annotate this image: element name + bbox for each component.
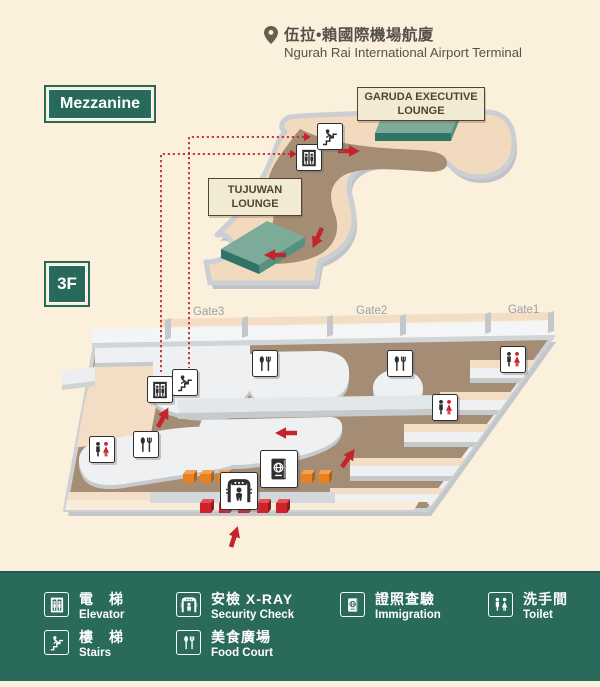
legend-item-toilet: 洗手間Toilet	[488, 592, 568, 622]
food-court-icon	[387, 350, 413, 377]
toilet-icon	[432, 394, 458, 421]
legend-toilet-zh: 洗手間	[523, 592, 568, 607]
gate2-label: Gate2	[356, 305, 387, 317]
stairs-icon	[172, 369, 198, 396]
legend-immigration-en: Immigration	[375, 609, 441, 622]
garuda-executive-lounge-label: GARUDA EXECUTIVE LOUNGE	[357, 87, 485, 121]
immigration-icon	[340, 592, 365, 617]
legend-item-immigration: 證照查驗Immigration	[340, 592, 441, 622]
immigration-icon	[260, 450, 298, 488]
page-title-zh: 伍拉•賴國際機場航廈	[284, 23, 434, 45]
airport-terminal-map-page: 伍拉•賴國際機場航廈 Ngurah Rai International Airp…	[0, 0, 600, 687]
legend-item-food-court: 美食廣場Food Court	[176, 630, 273, 660]
legend-security-en: Security Check	[211, 609, 294, 622]
legend-item-stairs: 樓 梯Stairs	[44, 630, 124, 660]
toilet-icon	[89, 436, 115, 463]
toilet-icon	[488, 592, 513, 617]
legend-item-elevator: 電 梯Elevator	[44, 592, 124, 622]
tujuwan-lounge-label: TUJUWAN LOUNGE	[208, 178, 302, 216]
toilet-icon	[500, 346, 526, 373]
legend-elevator-en: Elevator	[79, 609, 124, 622]
gate3-label: Gate3	[193, 306, 224, 318]
legend-stairs-zh: 樓 梯	[79, 630, 124, 645]
legend-elevator-zh: 電 梯	[79, 592, 124, 607]
page-title-en: Ngurah Rai International Airport Termina…	[284, 45, 522, 60]
third-floor-level-label: 3F	[48, 265, 86, 303]
food-court-icon	[252, 350, 278, 377]
location-pin-icon	[264, 26, 278, 44]
third-floor-level-badge: 3F	[44, 261, 90, 307]
legend-stairs-en: Stairs	[79, 647, 124, 660]
stairs-icon	[317, 123, 343, 150]
third-floor-map	[62, 311, 557, 516]
legend-item-security: 安檢 X-RAYSecurity Check	[176, 592, 294, 622]
legend-panel: 電 梯Elevator 安檢 X-RAYSecurity Check 證照查驗I…	[0, 571, 600, 681]
legend-toilet-en: Toilet	[523, 609, 568, 622]
mezzanine-level-badge: Mezzanine	[44, 85, 156, 123]
stairs-icon	[44, 630, 69, 655]
legend-food-court-zh: 美食廣場	[211, 630, 273, 645]
gate1-label: Gate1	[508, 304, 539, 316]
security-check-icon	[176, 592, 201, 617]
legend-food-court-en: Food Court	[211, 647, 273, 660]
legend-security-zh: 安檢 X-RAY	[211, 592, 294, 607]
food-court-icon	[133, 431, 159, 458]
elevator-icon	[147, 376, 173, 403]
elevator-icon	[44, 592, 69, 617]
food-court-icon	[176, 630, 201, 655]
legend-immigration-zh: 證照查驗	[375, 592, 441, 607]
security-check-icon	[220, 472, 258, 510]
mezzanine-level-label: Mezzanine	[48, 89, 152, 119]
